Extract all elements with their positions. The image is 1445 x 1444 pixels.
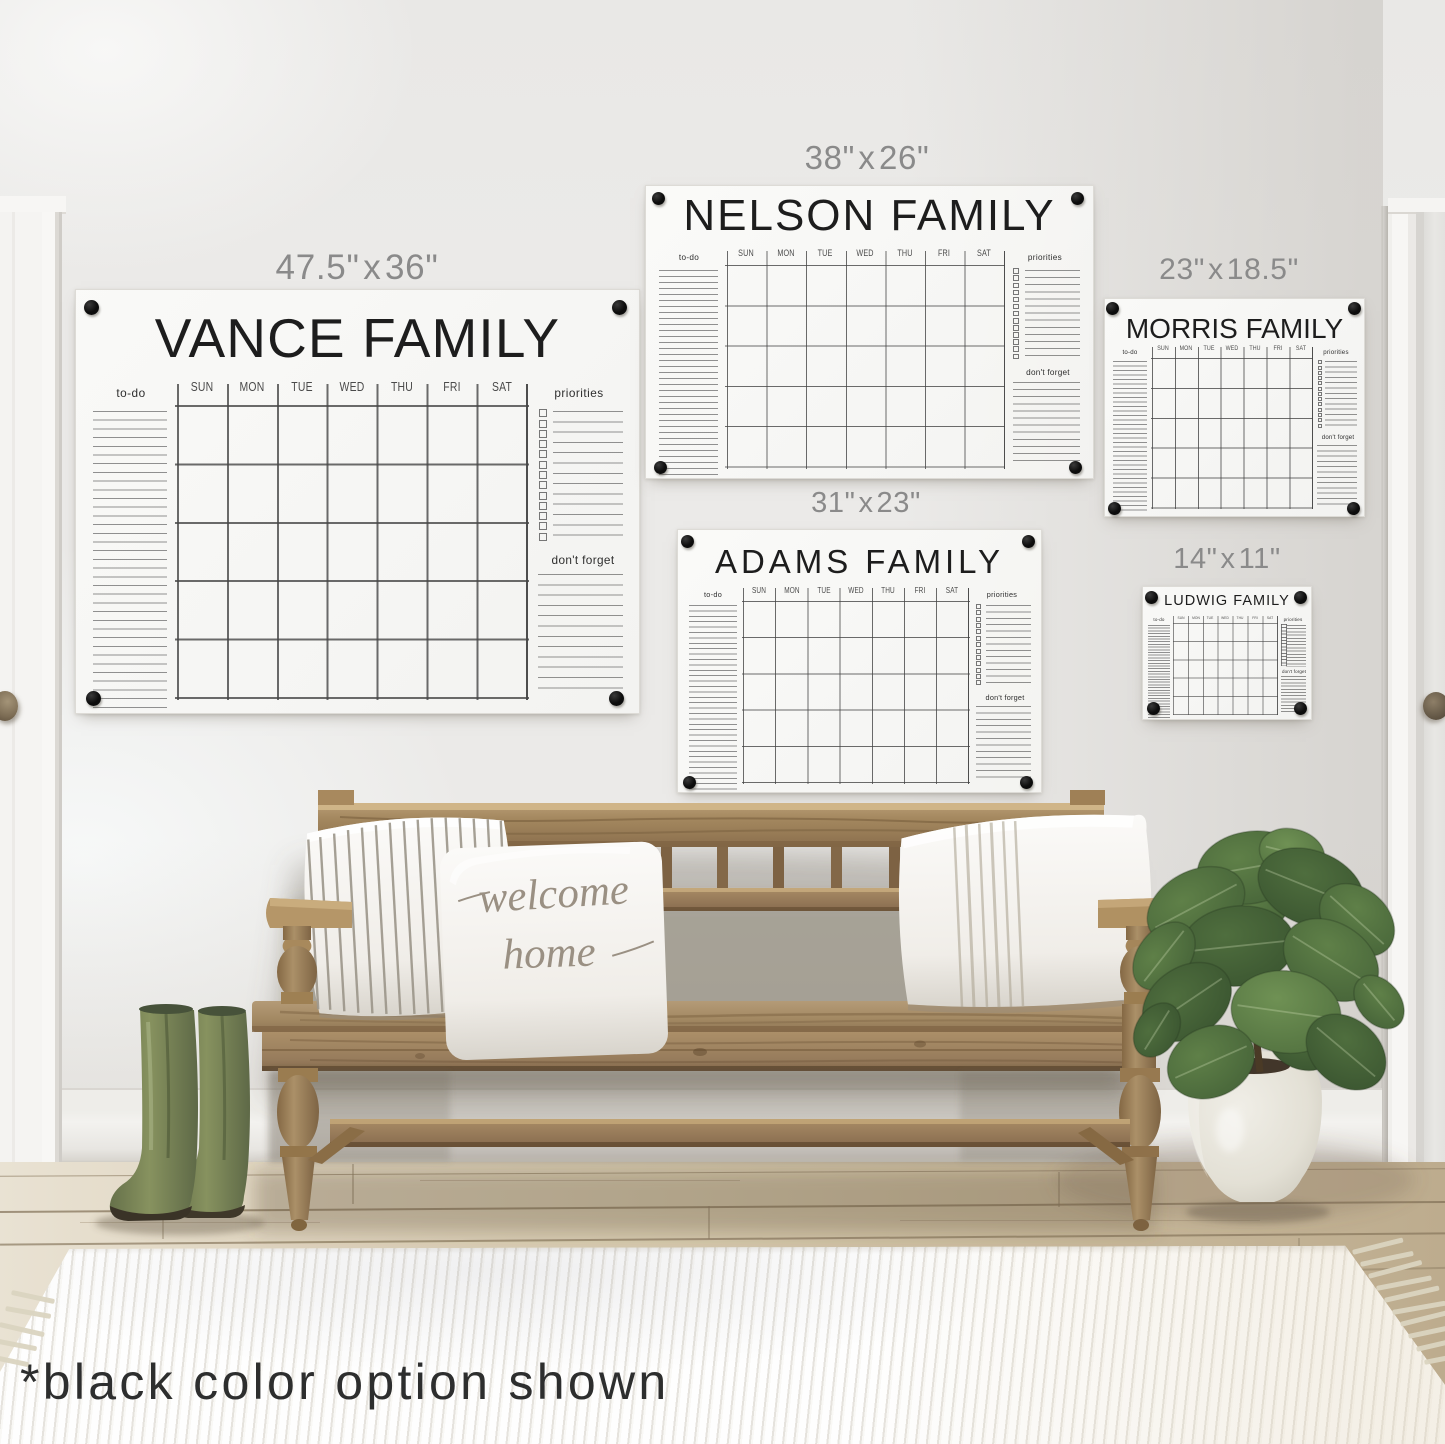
svg-text:home: home (502, 928, 597, 978)
svg-text:welcome: welcome (477, 866, 630, 922)
